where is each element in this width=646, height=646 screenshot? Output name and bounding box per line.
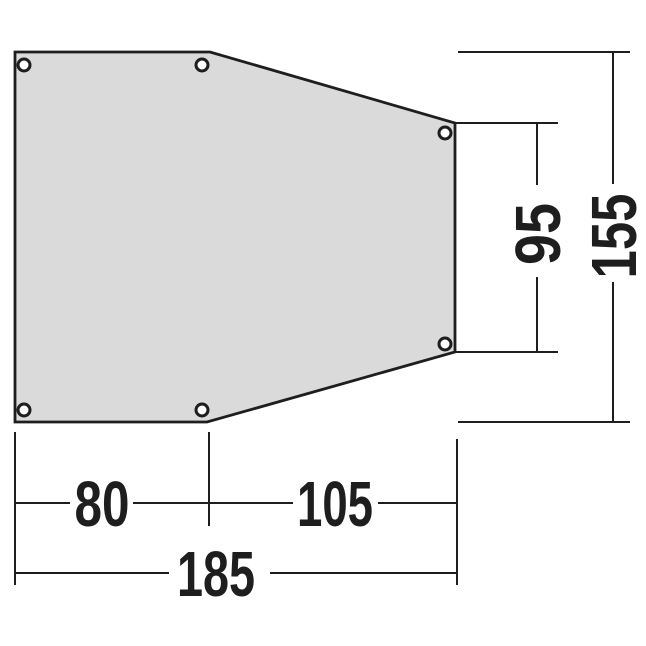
grommet-right-top: [439, 127, 451, 139]
footprint-outline: [15, 52, 455, 422]
diagram-canvas: 155 95 80 105: [0, 0, 646, 646]
dimension-label-inner-height: 95: [502, 203, 574, 265]
dimension-label-total-height: 155: [578, 194, 646, 279]
grommet-bottom-middle: [196, 404, 208, 416]
dimension-label-total-width: 185: [177, 538, 255, 610]
dimension-left-width: 80: [15, 468, 209, 540]
dimension-label-left-width: 80: [75, 468, 130, 540]
dimension-total-width: 185: [15, 538, 457, 610]
dimension-right-width: 105: [209, 468, 457, 540]
grommet-top-middle: [196, 59, 208, 71]
dimension-label-right-width: 105: [297, 468, 373, 540]
grommet-bottom-left: [18, 404, 30, 416]
footprint-dimension-diagram: 155 95 80 105: [0, 0, 646, 646]
dimension-inner-height: 95: [455, 123, 574, 352]
grommet-right-bottom: [439, 338, 451, 350]
grommet-top-left: [18, 59, 30, 71]
